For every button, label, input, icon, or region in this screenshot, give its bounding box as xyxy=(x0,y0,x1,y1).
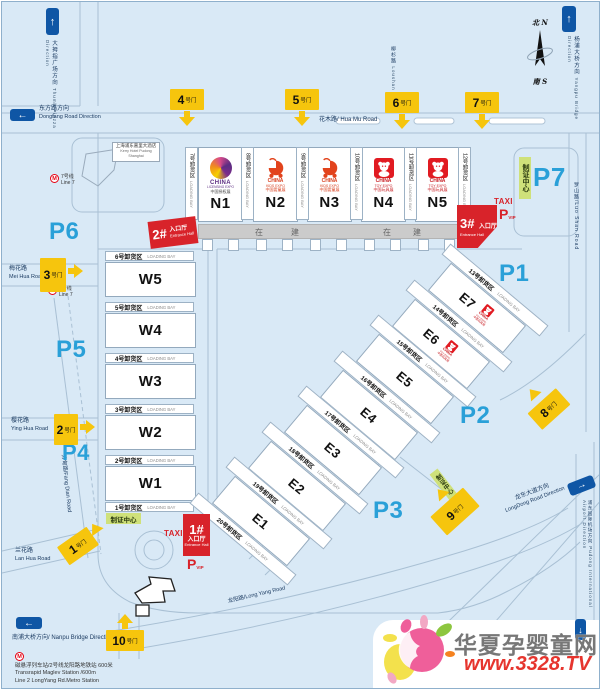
gate-number: 10 xyxy=(112,634,125,648)
compass-south-label: 南 S xyxy=(522,77,558,87)
kids-expo-logo: CHINAKIDS EXPO中国婴童展 xyxy=(319,158,341,193)
uc-char: 在 xyxy=(255,227,263,238)
hall-label-W4: W4 xyxy=(139,322,163,339)
hall-label-N3: N3 xyxy=(319,194,339,211)
gate-suffix: 号门 xyxy=(127,637,138,645)
nanpu-en: Nanpu Bridge Direction xyxy=(51,635,113,641)
gate-7: 7号门 xyxy=(465,92,499,113)
badge-center-p7: 制证中心 xyxy=(519,157,531,199)
gate-suffix: 号门 xyxy=(480,99,491,107)
loading-bay-zh: 10号卸货区 xyxy=(353,153,361,181)
gate-3: 3号门 xyxy=(40,258,66,292)
hall-W2: W2 xyxy=(105,415,196,450)
toy-zh: 中国玩具展 xyxy=(374,188,394,192)
yinghua-road-label: 樱花路 Ying Hua Road xyxy=(11,418,48,432)
loading-bay-en: LOADING BAY xyxy=(189,181,194,208)
dock-stub xyxy=(282,239,293,251)
entrance-1-num: 1# xyxy=(189,523,203,537)
dongfang-road-direction-label: 东方路方向 Dongfang Road Direction xyxy=(39,106,101,120)
arrow-stem xyxy=(122,623,128,629)
up-arrow-icon: ↑ xyxy=(46,8,59,35)
gate-10: 10号门 xyxy=(106,630,144,651)
hotel-en: Kerry Hotel Pudong Shanghai xyxy=(113,149,159,158)
metro-line7-marker-north: M 7号线 Line 7 xyxy=(50,174,75,186)
loading-bay-6: 6号卸货区LOADING BAY xyxy=(105,251,194,261)
expo-entrance-building xyxy=(135,577,175,616)
meihua-zh: 梅花路 xyxy=(9,266,44,274)
loading-bay-8: 8号卸货区LOADING BAY xyxy=(241,147,254,220)
metro-note-en1: Transrapid Maglev Station /600m xyxy=(15,670,113,677)
hall-N4: CHINATOY EXPO中国玩具展N4 xyxy=(361,147,406,222)
gate-number: 3 xyxy=(44,268,51,282)
dock-stub xyxy=(364,239,375,251)
gate-arrow-down-icon xyxy=(294,111,310,126)
entrance-3-zh: 入口厅 xyxy=(479,224,497,230)
gate-number: 4 xyxy=(178,93,185,107)
arrow-head xyxy=(74,264,83,278)
dock-stub xyxy=(202,239,213,251)
loading-bay-zh: 5号卸货区 xyxy=(115,303,142,312)
hall-label-E5: E5 xyxy=(394,368,417,390)
left-arrow-icon: ← xyxy=(16,617,42,629)
parking-p7: P7 xyxy=(533,162,566,193)
gate-suffix: 号门 xyxy=(51,271,62,279)
loading-bay-zh: 11号卸货区 xyxy=(407,153,415,181)
loading-bay-en: LOADING BAY xyxy=(147,505,175,510)
loading-bay-zh: 7号卸货区 xyxy=(188,153,196,178)
loading-bay-7: 7号卸货区LOADING BAY xyxy=(185,147,198,220)
gate-5: 5号门 xyxy=(285,89,319,110)
loading-bay-en: LOADING BAY xyxy=(147,254,175,259)
toy-expo-logo: CHINATOY EXPO中国玩具展 xyxy=(437,338,461,363)
compass: 北 N 南 S xyxy=(522,18,558,87)
metro-note-en2: Line 2 LongYang Rd.Metro Station xyxy=(15,678,113,685)
hall-W3: W3 xyxy=(105,364,196,399)
hall-label-N4: N4 xyxy=(373,194,393,211)
parking-p1: P1 xyxy=(499,260,529,288)
watermark-url: www.3328.TV xyxy=(464,653,591,676)
dock-stub xyxy=(310,239,321,251)
kids-expo-logo: CHINAKIDS EXPO中国婴童展 xyxy=(265,158,287,193)
parking-p2: P2 xyxy=(460,402,490,430)
licensing-zh: 中国授权展 xyxy=(211,190,231,194)
loading-bay-zh: 9号卸货区 xyxy=(299,153,307,178)
gate-arrow-down-icon xyxy=(394,114,410,129)
gate-arrow-right-icon xyxy=(68,264,83,278)
meihua-en: Mei Hua Road xyxy=(9,274,44,281)
hotel-zh: 上海浦东嘉里大酒店 xyxy=(113,143,159,149)
loading-bay-zh: 6号卸货区 xyxy=(115,252,142,261)
vip-p: P xyxy=(499,206,508,222)
loading-bay-2: 2号卸货区LOADING BAY xyxy=(105,455,194,465)
dock-stub xyxy=(390,239,401,251)
pram-icon xyxy=(319,158,341,178)
vip-parking-west: PVIP xyxy=(187,557,204,573)
hall-label-E1: E1 xyxy=(250,510,273,532)
taxi-label-east: TAXI xyxy=(494,197,513,206)
entrance-3-en: Entrance Hall xyxy=(460,233,484,237)
left-arrow-icon: ← xyxy=(10,109,35,121)
loading-bay-en: LOADING BAY xyxy=(147,407,175,412)
vip-sub: VIP xyxy=(508,215,515,220)
compass-needle-icon xyxy=(526,28,554,72)
loading-bay-en: LOADING BAY xyxy=(245,181,250,208)
meihua-road-label: 梅花路 Mei Hua Road xyxy=(9,266,44,280)
uc-char: 建 xyxy=(413,227,421,238)
licensing-expo-logo: CHINALICENSING EXPO中国授权展 xyxy=(207,157,234,195)
gate-arrow-right-icon xyxy=(80,420,95,434)
gate-suffix: 号门 xyxy=(185,96,196,104)
gate-arrow-down-icon xyxy=(474,114,490,129)
hall-label-E6: E6 xyxy=(421,325,444,347)
loading-bay-en: LOADING BAY xyxy=(408,184,413,211)
vip-parking-east: PVIP xyxy=(499,207,516,223)
gate-suffix: 号门 xyxy=(400,99,411,107)
nanpu-zh: 南浦大桥方向/ xyxy=(12,635,50,641)
hall-W1: W1 xyxy=(105,466,196,501)
gate-number: 6 xyxy=(393,96,400,110)
pram-icon xyxy=(265,158,287,178)
hall-N3: CHINAKIDS EXPO中国婴童展N3 xyxy=(307,147,352,222)
loushan-zh: 柳杉路 xyxy=(390,46,396,64)
loading-bay-zh: 12号卸货区 xyxy=(461,153,469,181)
thumb-piazza-zh: 大拇指广场方向 xyxy=(51,40,57,86)
loading-bay-zh: 1号卸货区 xyxy=(115,503,142,512)
loading-bay-1: 1号卸货区LOADING BAY xyxy=(105,502,194,512)
entrance-2-en: Entrance Hall xyxy=(170,231,194,238)
lanhua-zh: 兰花路 xyxy=(15,548,50,556)
hall-W4: W4 xyxy=(105,313,196,348)
luoshan-text: 罗山路/Luo Shan Road xyxy=(573,182,579,250)
teddy-bear-icon xyxy=(374,158,394,178)
nanpu-bridge-direction-label: 南浦大桥方向/ Nanpu Bridge Direction xyxy=(12,632,113,641)
loading-bay-zh: 3号卸货区 xyxy=(115,405,142,414)
kids-zh: 中国婴童展 xyxy=(320,188,340,192)
gate-2: 2号门 xyxy=(54,414,78,445)
line7-en: Line 7 xyxy=(61,180,75,186)
entrance-hall-1: 1# 入口厅 Entrance Hall xyxy=(183,514,210,556)
hall-label-W5: W5 xyxy=(139,271,163,288)
toy-expo-logo: CHINATOY EXPO中国玩具展 xyxy=(428,158,448,193)
hall-N5: CHINATOY EXPO中国玩具展N5 xyxy=(415,147,460,222)
toy-expo-logo: CHINATOY EXPO中国玩具展 xyxy=(473,302,497,327)
parking-p5: P5 xyxy=(56,336,86,364)
arrow-head xyxy=(474,120,490,129)
licensing-swirl-icon xyxy=(210,157,232,179)
yangpu-bridge-direction-label: 杨浦大桥方向 Yangpu Bridge Direction xyxy=(566,36,580,144)
hall-label-N1: N1 xyxy=(210,195,230,212)
toy-expo-logo: CHINATOY EXPO中国玩具展 xyxy=(374,158,394,193)
loading-bay-3: 3号卸货区LOADING BAY xyxy=(105,404,194,414)
yinghua-en: Ying Hua Road xyxy=(11,426,48,433)
kerry-hotel-label: 上海浦东嘉里大酒店 Kerry Hotel Pudong Shanghai xyxy=(112,142,160,162)
vip-sub: VIP xyxy=(196,565,203,570)
dongfang-en: Dongfang Road Direction xyxy=(39,114,101,121)
compass-north-label: 北 N xyxy=(522,18,558,28)
lanhua-en: Lan Hua Road xyxy=(15,556,50,563)
loading-bay-en: LOADING BAY xyxy=(147,305,175,310)
thumb-piazza-direction-label: 大拇指广场方向 Thumb Piazza Direction xyxy=(44,40,58,145)
hall-label-E3: E3 xyxy=(322,439,345,461)
loading-bay-en: LOADING BAY xyxy=(147,356,175,361)
arrow-head xyxy=(179,117,195,126)
metro-icon: M xyxy=(15,652,24,661)
loading-bay-en: LOADING BAY xyxy=(354,184,359,211)
metro-note-zh: 磁悬浮列车站/2号线龙阳路地铁站 600米 xyxy=(15,663,113,670)
loading-bay-9: 9号卸货区LOADING BAY xyxy=(296,147,309,220)
airport-zh: 浦东国际机场方向 xyxy=(588,500,593,544)
yinghua-zh: 樱花路 xyxy=(11,418,48,426)
taxi-label-west: TAXI xyxy=(164,529,183,538)
arrow-head xyxy=(86,420,95,434)
teddy-bear-icon xyxy=(428,158,448,178)
hall-label-N5: N5 xyxy=(427,194,447,211)
parking-p3: P3 xyxy=(373,497,403,525)
gate-6: 6号门 xyxy=(385,92,419,113)
hall-label-N2: N2 xyxy=(265,194,285,211)
parking-p6: P6 xyxy=(49,218,79,246)
hall-N2: CHINAKIDS EXPO中国婴童展N2 xyxy=(253,147,298,222)
hall-W5: W5 xyxy=(105,262,196,297)
under-construction-bar: 在 建 在 建 xyxy=(198,224,471,239)
dongfang-zh: 东方路方向 xyxy=(39,106,101,114)
loading-bay-4: 4号卸货区LOADING BAY xyxy=(105,353,194,363)
gate-number: 2 xyxy=(57,423,64,437)
lanhua-road-label: 兰花路 Lan Hua Road xyxy=(15,548,50,562)
hall-label-E4: E4 xyxy=(358,403,381,425)
entrance-1-en: Entrance Hall xyxy=(184,543,208,547)
gate-arrow-up-icon xyxy=(117,614,133,629)
up-arrow-icon: ↑ xyxy=(562,6,576,32)
hall-label-W1: W1 xyxy=(139,475,163,492)
metro-icon: M xyxy=(50,174,59,183)
loading-bay-5: 5号卸货区LOADING BAY xyxy=(105,302,194,312)
gate-number: 5 xyxy=(293,93,300,107)
arrow-head xyxy=(394,120,410,129)
huamu-road-label: 花木路/ Hua Mu Road xyxy=(319,114,377,123)
entrance-3-num: 3# xyxy=(460,216,474,231)
loading-bay-en: LOADING BAY xyxy=(147,458,175,463)
expo-venue-map: 北 N 南 S ↑ 大拇指广场方向 Thumb Piazza Direction… xyxy=(1,1,600,689)
hall-label-E2: E2 xyxy=(286,474,309,496)
dock-stub xyxy=(336,239,347,251)
badge-center-west: 制证中心 xyxy=(106,513,141,524)
toy-zh: 中国玩具展 xyxy=(428,188,448,192)
gate-number: 7 xyxy=(473,96,480,110)
loading-bay-zh: 2号卸货区 xyxy=(115,456,142,465)
kids-zh: 中国婴童展 xyxy=(266,188,286,192)
gate-arrow-down-icon xyxy=(179,111,195,126)
yangpu-zh: 杨浦大桥方向 xyxy=(573,36,579,75)
gate-suffix: 号门 xyxy=(300,96,311,104)
hall-label-W3: W3 xyxy=(139,373,163,390)
loading-bay-11: 11号卸货区LOADING BAY xyxy=(404,147,417,220)
dock-stub xyxy=(256,239,267,251)
uc-char: 在 xyxy=(383,227,391,238)
entrance-2-num: 2# xyxy=(152,226,168,241)
loading-bay-zh: 8号卸货区 xyxy=(244,153,252,178)
hall-label-W2: W2 xyxy=(139,424,163,441)
loading-bay-en: LOADING BAY xyxy=(300,181,305,208)
hall-N1: CHINALICENSING EXPO中国授权展N1 xyxy=(198,147,243,222)
dock-stub xyxy=(228,239,239,251)
line7-en: Line 7 xyxy=(59,292,73,298)
gate-suffix: 号门 xyxy=(64,426,75,434)
dock-stub xyxy=(418,239,429,251)
arrow-head xyxy=(117,614,133,623)
metro-maglev-note: M 磁悬浮列车站/2号线龙阳路地铁站 600米 Transrapid Magle… xyxy=(15,652,113,685)
uc-char: 建 xyxy=(291,227,299,238)
loading-bay-zh: 4号卸货区 xyxy=(115,354,142,363)
loading-bay-10: 10号卸货区LOADING BAY xyxy=(350,147,363,220)
hall-label-E7: E7 xyxy=(457,289,480,311)
gate-4: 4号门 xyxy=(170,89,204,110)
luoshan-road-label: 罗山路/Luo Shan Road xyxy=(573,182,580,252)
airport-direction-label: 浦东国际机场方向 Pudong International Airport Di… xyxy=(582,500,593,615)
vip-p: P xyxy=(187,556,196,572)
arrow-head xyxy=(294,117,310,126)
